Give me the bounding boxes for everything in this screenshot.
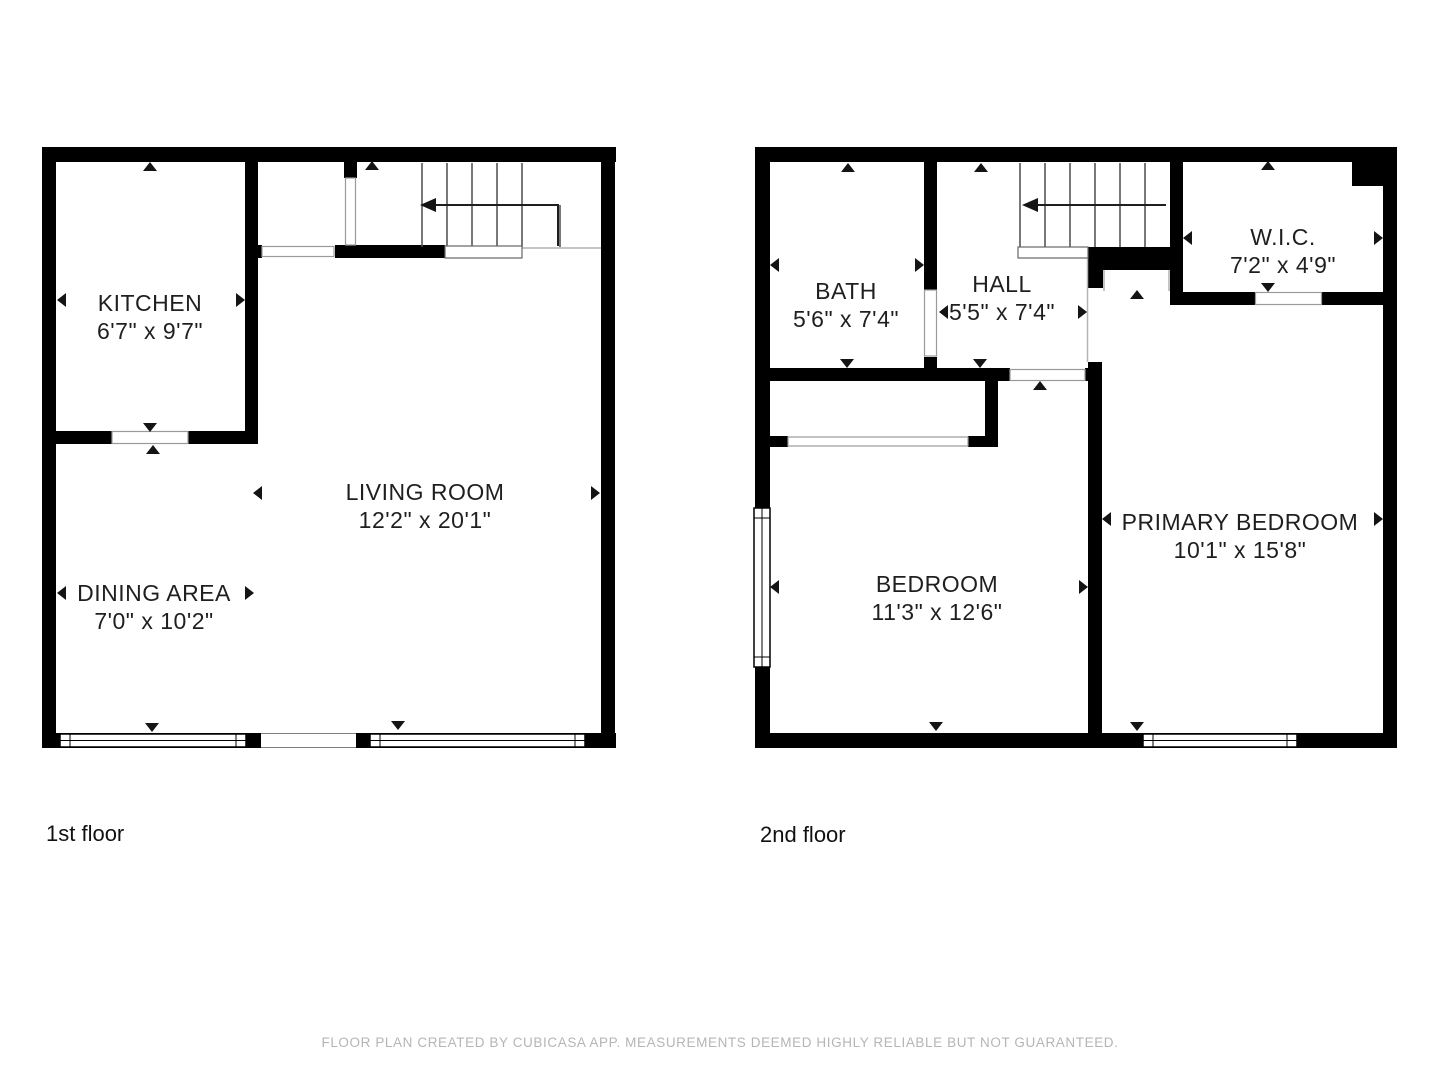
wall-wic-bottom-right: [1322, 292, 1383, 305]
arrow-up-icon: [143, 162, 157, 171]
arrow-down-icon: [929, 722, 943, 731]
entry-opening-horizontal: [262, 247, 334, 257]
arrow-right-icon: [1374, 512, 1383, 526]
room-dimensions: 12'2" x 20'1": [359, 507, 492, 533]
front-door-gap: [261, 734, 356, 748]
arrow-left-icon: [770, 580, 779, 594]
arrow-up-icon: [1130, 290, 1144, 299]
wic-door-opening: [1256, 293, 1322, 305]
room-label: W.I.C.: [1250, 224, 1316, 250]
arrow-left-icon: [57, 293, 66, 307]
room-hall: HALL 5'5" x 7'4": [949, 271, 1055, 325]
arrow-down-icon: [840, 359, 854, 368]
arrow-down-icon: [145, 723, 159, 732]
room-dimensions: 11'3" x 12'6": [872, 599, 1003, 625]
arrow-left-icon: [939, 305, 948, 319]
arrow-down-icon: [973, 359, 987, 368]
wall-stairwell-right: [1170, 162, 1183, 305]
wall-bedroom-divider: [1088, 362, 1102, 733]
wall-closet-bottom-right: [968, 436, 998, 447]
room-bath: BATH 5'6" x 7'4": [793, 278, 899, 332]
arrow-up-icon: [841, 163, 855, 172]
room-primary-bedroom: PRIMARY BEDROOM 10'1" x 15'8": [1122, 509, 1359, 563]
wall-under-stairs: [335, 245, 445, 258]
wall-top: [42, 147, 616, 162]
entry-opening-vertical: [346, 178, 356, 245]
arrow-up-icon: [365, 161, 379, 170]
wall-under-stairs-stub: [1088, 247, 1103, 288]
wall-top: [755, 147, 1397, 162]
room-label: PRIMARY BEDROOM: [1122, 509, 1359, 535]
arrow-right-icon: [915, 258, 924, 272]
wall-closet-right: [985, 381, 998, 436]
stair-nosing: [1018, 247, 1088, 258]
arrow-right-icon: [591, 486, 600, 500]
wall-kitchen-right: [245, 162, 258, 444]
kitchen-door-opening: [112, 432, 188, 444]
room-dimensions: 7'2" x 4'9": [1230, 252, 1336, 278]
floor-title: 2nd floor: [760, 822, 846, 847]
arrow-right-icon: [1374, 231, 1383, 245]
arrow-down-icon: [391, 721, 405, 730]
stairs: [1018, 163, 1166, 258]
hall-bedroom-opening: [1010, 370, 1085, 381]
wall-bath-right: [924, 162, 937, 290]
room-label: KITCHEN: [98, 290, 202, 316]
arrow-right-icon: [236, 293, 245, 307]
wall-left: [42, 147, 56, 748]
second-floor-plan: BATH 5'6" x 7'4" HALL 5'5" x 7'4" W.I.C.…: [754, 147, 1397, 847]
footer-disclaimer: FLOOR PLAN CREATED BY CUBICASA APP. MEAS…: [321, 1035, 1118, 1050]
floor-title: 1st floor: [46, 821, 124, 846]
first-floor-plan: KITCHEN 6'7" x 9'7" LIVING ROOM 12'2" x …: [42, 147, 616, 846]
arrow-right-icon: [1078, 305, 1087, 319]
arrow-up-icon: [1033, 381, 1047, 390]
arrow-left-icon: [57, 586, 66, 600]
arrow-left-icon: [253, 486, 262, 500]
arrow-down-icon: [1261, 283, 1275, 292]
room-living-room: LIVING ROOM 12'2" x 20'1": [346, 479, 505, 533]
wall-bottom: [755, 733, 1397, 748]
wall-bath-hall-bottom: [770, 368, 1010, 381]
room-label: DINING AREA: [77, 580, 231, 606]
stair-direction-line: [434, 205, 558, 246]
wall-right: [601, 147, 615, 748]
room-dimensions: 6'7" x 9'7": [97, 318, 203, 344]
closet-opening: [788, 437, 968, 446]
room-label: HALL: [972, 271, 1032, 297]
room-label: LIVING ROOM: [346, 479, 505, 505]
arrow-right-icon: [1079, 580, 1088, 594]
room-dimensions: 7'0" x 10'2": [94, 608, 213, 634]
arrow-up-icon: [974, 163, 988, 172]
wall-entry-stub: [344, 162, 357, 178]
arrow-left-icon: [770, 258, 779, 272]
arrow-up-icon: [146, 445, 160, 454]
wall-wic-bottom-left: [1183, 292, 1255, 305]
arrow-right-icon: [245, 586, 254, 600]
bath-door-opening: [925, 290, 937, 356]
room-label: BATH: [815, 278, 877, 304]
room-dimensions: 5'6" x 7'4": [793, 306, 899, 332]
room-dimensions: 10'1" x 15'8": [1174, 537, 1307, 563]
wall-right: [1383, 147, 1397, 748]
walls: [42, 147, 616, 748]
floor-plan-canvas: KITCHEN 6'7" x 9'7" LIVING ROOM 12'2" x …: [0, 0, 1440, 1080]
room-dining-area: DINING AREA 7'0" x 10'2": [77, 580, 231, 634]
doorways: [112, 178, 356, 748]
wall-entry-nub-left: [252, 245, 262, 258]
arrow-up-icon: [1261, 161, 1275, 170]
room-dimensions: 5'5" x 7'4": [949, 299, 1055, 325]
room-kitchen: KITCHEN 6'7" x 9'7": [97, 290, 203, 344]
stairs: [420, 163, 601, 258]
arrow-left-icon: [1102, 512, 1111, 526]
arrow-left-icon: [1183, 231, 1192, 245]
stair-direction-arrow-icon: [1022, 198, 1038, 212]
room-wic: W.I.C. 7'2" x 4'9": [1230, 224, 1336, 278]
room-bedroom: BEDROOM 11'3" x 12'6": [872, 571, 1003, 625]
arrow-down-icon: [143, 423, 157, 432]
arrow-down-icon: [1130, 722, 1144, 731]
room-label: BEDROOM: [876, 571, 998, 597]
stair-nosing: [445, 246, 522, 258]
wall-closet-bottom-left: [770, 436, 788, 447]
